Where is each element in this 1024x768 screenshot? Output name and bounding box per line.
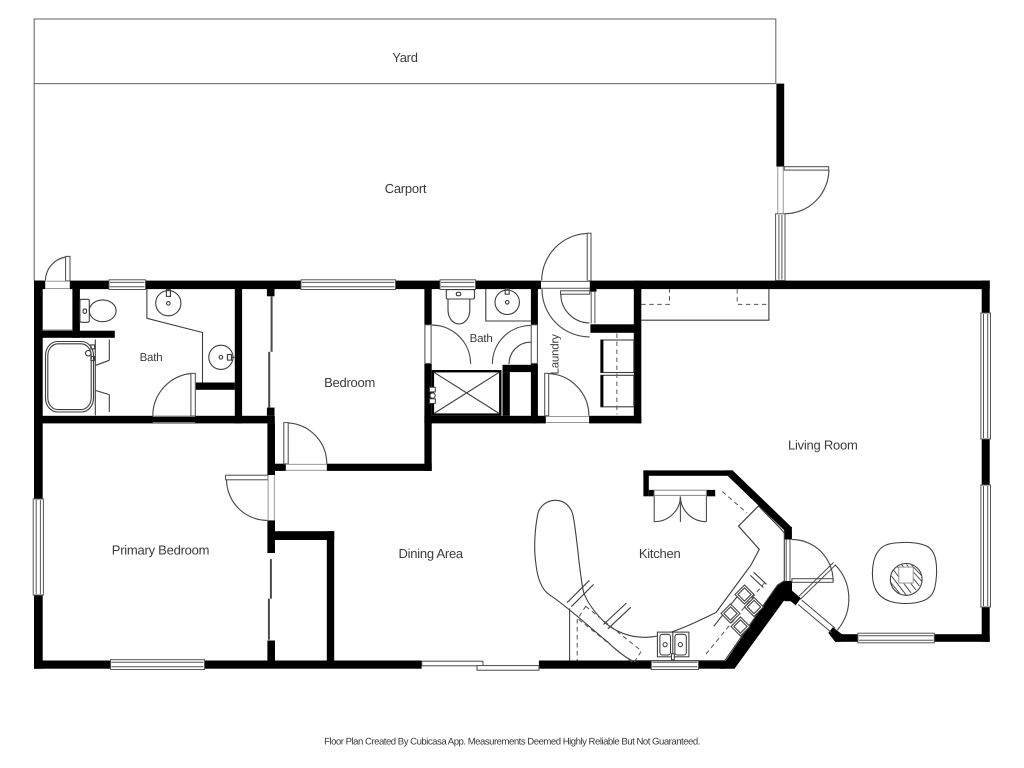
svg-text:Laundry: Laundry [550, 334, 562, 375]
svg-text:Bath: Bath [140, 352, 163, 364]
svg-text:Living Room: Living Room [788, 438, 858, 453]
svg-text:Kitchen: Kitchen [639, 546, 681, 561]
svg-text:Floor Plan Created By Cubicasa: Floor Plan Created By Cubicasa App. Meas… [324, 737, 700, 748]
svg-text:Dining Area: Dining Area [398, 546, 463, 561]
svg-text:Bedroom: Bedroom [324, 375, 375, 390]
svg-text:Yard: Yard [392, 50, 418, 65]
svg-text:Bath: Bath [470, 333, 493, 345]
svg-text:Carport: Carport [385, 181, 427, 196]
svg-text:Primary Bedroom: Primary Bedroom [112, 543, 209, 558]
